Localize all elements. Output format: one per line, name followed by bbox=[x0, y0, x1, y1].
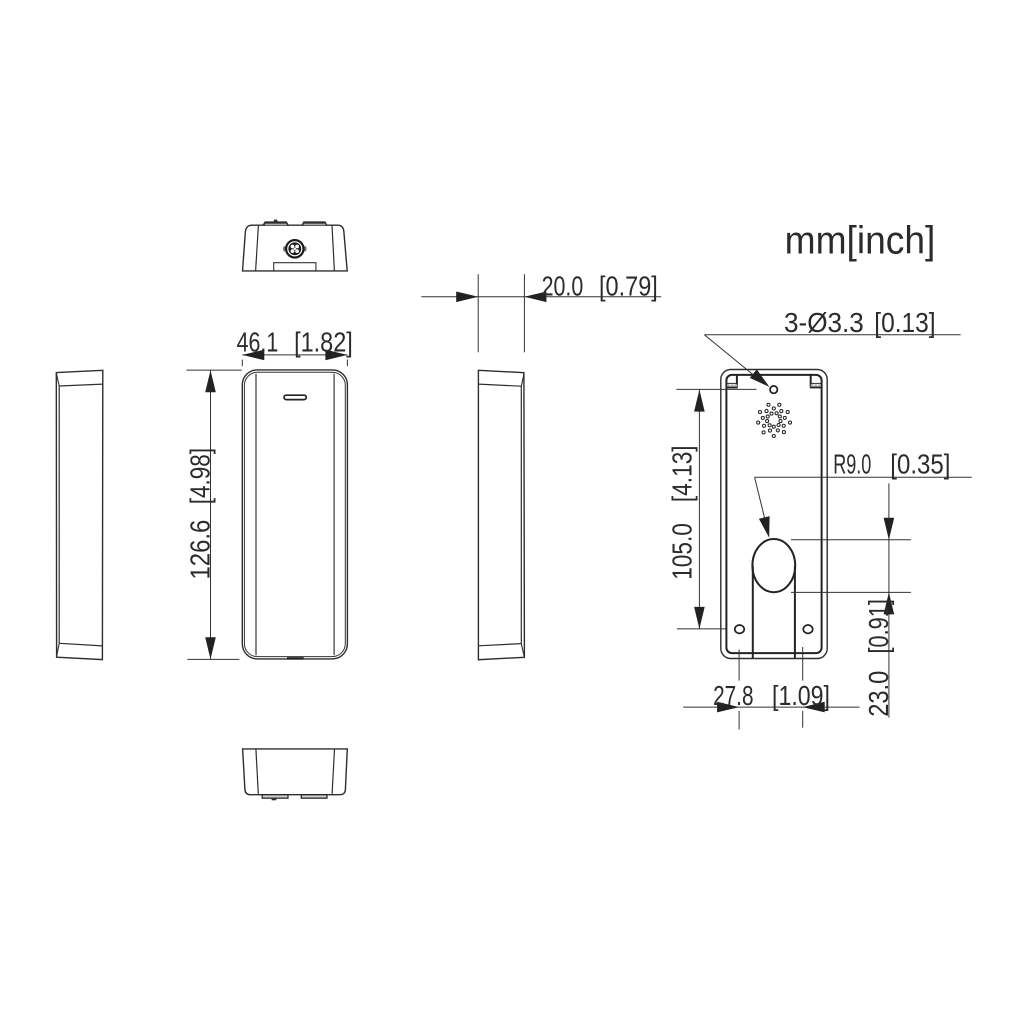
svg-text:[0.79]: [0.79] bbox=[599, 270, 658, 301]
svg-text:[0.13]: [0.13] bbox=[874, 307, 935, 338]
svg-text:mm[inch]: mm[inch] bbox=[785, 219, 936, 262]
svg-text:126.6: 126.6 bbox=[185, 520, 216, 580]
svg-text:27.8: 27.8 bbox=[713, 680, 753, 711]
svg-text:[1.09]: [1.09] bbox=[772, 680, 830, 711]
svg-text:3-Ø3.3: 3-Ø3.3 bbox=[784, 307, 864, 338]
svg-text:20.0: 20.0 bbox=[542, 270, 584, 301]
svg-text:[0.35]: [0.35] bbox=[890, 449, 950, 480]
svg-text:[4.98]: [4.98] bbox=[185, 448, 216, 504]
svg-text:[1.82]: [1.82] bbox=[294, 327, 353, 358]
svg-text:[0.91]: [0.91] bbox=[863, 599, 894, 653]
svg-text:46.1: 46.1 bbox=[237, 327, 279, 358]
svg-text:105.0: 105.0 bbox=[666, 523, 697, 580]
svg-text:[4.13]: [4.13] bbox=[666, 445, 697, 502]
svg-text:R9.0: R9.0 bbox=[833, 449, 871, 480]
svg-text:23.0: 23.0 bbox=[863, 671, 894, 717]
